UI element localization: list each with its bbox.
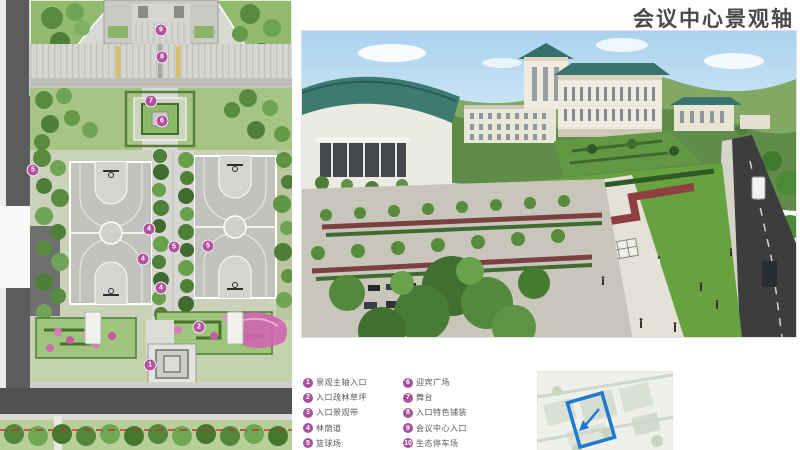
legend-item-1: 1景观主轴入口 xyxy=(303,377,413,388)
plan-marker-5: 5 xyxy=(27,164,40,177)
legend-number-badge: 1 xyxy=(303,378,313,388)
render-plaza xyxy=(302,179,632,337)
plan-marker-4: 4 xyxy=(155,282,168,295)
legend-item-5: 5篮球场 xyxy=(303,438,413,449)
legend-number-badge: 10 xyxy=(403,438,413,448)
legend-label: 生态停车场 xyxy=(416,438,459,449)
legend-label: 林荫道 xyxy=(316,423,342,434)
legend-label: 入口特色铺装 xyxy=(416,407,467,418)
legend-number-badge: 7 xyxy=(403,393,413,403)
legend-label: 舞台 xyxy=(416,392,433,403)
plan-marker-8: 8 xyxy=(156,51,169,64)
plan-marker-7: 7 xyxy=(145,95,158,108)
legend-number-badge: 8 xyxy=(403,408,413,418)
rendering-scene xyxy=(302,31,796,337)
legend-column-right: 6迎宾广场7舞台8入口特色铺装9会议中心入口10生态停车场 xyxy=(403,377,513,450)
location-keymap xyxy=(537,371,673,450)
legend-number-badge: 5 xyxy=(303,438,313,448)
legend-item-2: 2入口疏林草坪 xyxy=(303,392,413,403)
plan-street-trees xyxy=(0,414,292,450)
legend-column-left: 1景观主轴入口2入口疏林草坪3入口景观带4林荫道5篮球场 xyxy=(303,377,413,450)
legend-item-3: 3入口景观带 xyxy=(303,407,413,418)
legend-item-4: 4林荫道 xyxy=(303,423,413,434)
legend-label: 篮球场 xyxy=(316,438,342,449)
site-plan-panel: 987654554421 xyxy=(0,0,292,450)
legend-item-7: 7舞台 xyxy=(403,392,513,403)
legend-label: 会议中心入口 xyxy=(416,423,467,434)
keymap-drawing xyxy=(537,371,673,450)
plan-marker-4: 4 xyxy=(137,253,150,266)
plan-marker-4: 4 xyxy=(143,223,156,236)
legend-number-badge: 4 xyxy=(303,423,313,433)
legend-label: 入口疏林草坪 xyxy=(316,392,367,403)
plan-entry-garden xyxy=(30,312,292,388)
plan-marker-2: 2 xyxy=(193,321,206,334)
legend-number-badge: 3 xyxy=(303,408,313,418)
legend-item-8: 8入口特色铺装 xyxy=(403,407,513,418)
legend-number-badge: 2 xyxy=(303,393,313,403)
plan-marker-5: 5 xyxy=(202,240,215,253)
legend-item-9: 9会议中心入口 xyxy=(403,423,513,434)
plan-marker-9: 9 xyxy=(155,24,168,37)
legend-item-6: 6迎宾广场 xyxy=(403,377,513,388)
legend-item-10: 10生态停车场 xyxy=(403,438,513,449)
plan-marker-1: 1 xyxy=(144,359,157,372)
perspective-rendering xyxy=(302,31,796,337)
legend-label: 入口景观带 xyxy=(316,407,359,418)
page-title: 会议中心景观轴 xyxy=(633,3,794,33)
legend-number-badge: 9 xyxy=(403,423,413,433)
render-exhibition-hall xyxy=(302,77,460,201)
legend-label: 迎宾广场 xyxy=(416,377,450,388)
legend-label: 景观主轴入口 xyxy=(316,377,367,388)
plan-marker-5: 5 xyxy=(168,241,181,254)
presentation-board: 987654554421 会议中心景观轴 xyxy=(0,0,800,450)
legend-number-badge: 6 xyxy=(403,378,413,388)
plan-marker-6: 6 xyxy=(156,115,169,128)
plan-entry-plaza xyxy=(30,0,292,95)
